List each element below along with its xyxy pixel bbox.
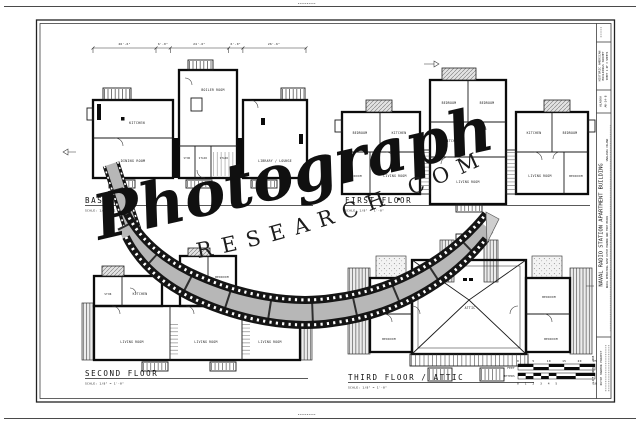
dimension-label: 6'-0"	[231, 42, 241, 46]
room-label: LIVING ROOM	[528, 174, 551, 178]
graphic-scale: FEET 0 5 10 15 20 25 METERS 0 1 2 3 4 5 …	[503, 359, 597, 386]
dimension-label: 26'-6"	[268, 42, 280, 46]
survey-number: AK-24-B	[604, 95, 608, 107]
plan-title: SECOND FLOOR	[85, 369, 158, 378]
plan-scale-note: SCALE: 1/8" = 1'-0"	[85, 382, 124, 386]
meters-tick: 4	[548, 382, 550, 386]
feet-label: FEET	[507, 366, 515, 370]
feet-tick: 0	[517, 359, 519, 363]
stair-hall	[506, 150, 516, 194]
dimension-label: 24'-6"	[193, 42, 205, 46]
chimney	[442, 68, 476, 80]
project-box-title: DUTCH HARBOR PROJECT	[599, 350, 603, 385]
plan-title: THIRD FLOOR / ATTIC	[348, 373, 464, 382]
dimension-label: 26'-6"	[118, 42, 130, 46]
meters-tick: 5	[555, 382, 557, 386]
room-label: BEDROOM	[382, 337, 396, 341]
film-strip-end	[486, 212, 499, 243]
room-label: BEDROOM	[569, 174, 583, 178]
title-block: HISTORIC AMERICAN BUILDINGS SURVEY SHEET…	[591, 24, 611, 399]
meters-tick: 3	[540, 382, 542, 386]
sheet-location: UNALASKA ISLAND	[605, 138, 609, 161]
boiler	[191, 98, 202, 111]
room-label: BOILER ROOM	[201, 88, 224, 92]
entry-stair	[103, 88, 131, 100]
room-label: BEDROOM	[563, 131, 578, 135]
chimney	[544, 100, 570, 112]
chimney-mass	[532, 256, 562, 278]
porch	[410, 354, 528, 366]
sheet-subtitle: NAVAL OPERATING BASE DUTCH HARBOR AND FO…	[605, 215, 609, 288]
drawing-sheet: HISTORIC AMERICAN BUILDINGS SURVEY SHEET…	[0, 0, 640, 425]
chimney	[102, 266, 124, 276]
room-label: LIVING ROOM	[194, 340, 217, 344]
room-label: BEDROOM	[215, 275, 229, 279]
dimension-label: 6'-0"	[158, 42, 168, 46]
second-left-annex-walls	[94, 276, 162, 306]
room-label: LIVING ROOM	[258, 340, 281, 344]
meters-tick: 0	[517, 382, 519, 386]
roof-hatch	[570, 268, 592, 354]
room-label: DINING ROOM	[121, 159, 146, 163]
feet-tick: 20	[578, 359, 582, 363]
meters-tick: 10	[593, 382, 597, 386]
room-label: KITCHEN	[129, 121, 145, 125]
room-label: KITCHEN	[527, 131, 542, 135]
side-porch-roof	[82, 303, 94, 360]
meters-tick: 1	[525, 382, 527, 386]
sheet-main-title: NAVAL RADIO STATION APARTMENT BUILDING	[599, 163, 605, 286]
feet-tick: 15	[562, 359, 566, 363]
feet-tick: 5	[532, 359, 534, 363]
survey-sheet-count: SHEET 1 OF 3 SHEETS	[605, 51, 609, 80]
meters-label: METERS	[503, 374, 515, 378]
chimney	[366, 100, 392, 112]
room-label: LIVING ROOM	[120, 340, 143, 344]
room-label: BEDROOM	[544, 337, 558, 341]
room-label: ATTIC	[465, 306, 476, 310]
survey-name-line2: BUILDINGS SURVEY	[601, 51, 605, 80]
state-label: ALASKA	[599, 96, 603, 107]
room-label: BEDROOM	[542, 295, 556, 299]
feet-tick: 10	[547, 359, 551, 363]
meters-tick: 2	[532, 382, 534, 386]
room-label: STOR	[104, 292, 111, 296]
scanned-drawing-photo: HISTORIC AMERICAN BUILDINGS SURVEY SHEET…	[0, 0, 640, 425]
room-label: KITCHEN	[133, 292, 148, 296]
feet-tick: 25	[593, 359, 597, 363]
room-label: LIVING ROOM	[456, 180, 479, 184]
plan-scale-note: SCALE: 1/8" = 1'-0"	[348, 386, 387, 390]
